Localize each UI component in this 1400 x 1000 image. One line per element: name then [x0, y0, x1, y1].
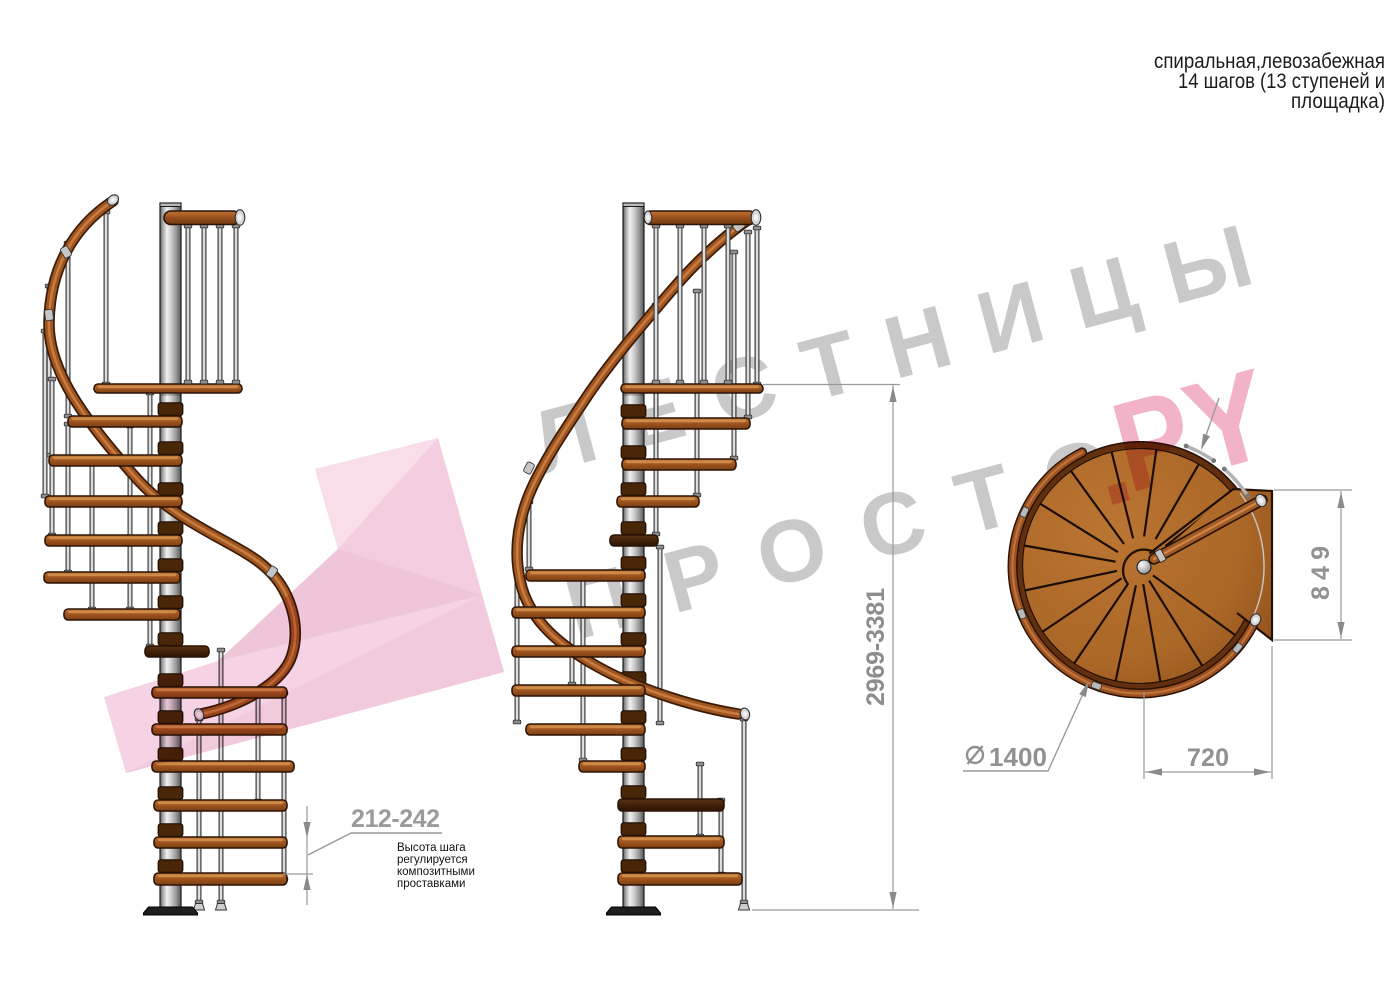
svg-text:проставками: проставками — [397, 878, 465, 890]
svg-text:1400: 1400 — [989, 742, 1047, 772]
svg-text:Высота шага: Высота шага — [397, 842, 466, 854]
svg-text:2969-3381: 2969-3381 — [862, 588, 890, 706]
svg-text:720: 720 — [1187, 744, 1229, 772]
svg-text:212-242: 212-242 — [351, 805, 440, 833]
svg-text:композитными: композитными — [397, 866, 475, 878]
svg-text:регулируется: регулируется — [397, 854, 468, 866]
svg-text:площадка): площадка) — [1291, 89, 1385, 113]
svg-text:849: 849 — [1307, 546, 1335, 600]
